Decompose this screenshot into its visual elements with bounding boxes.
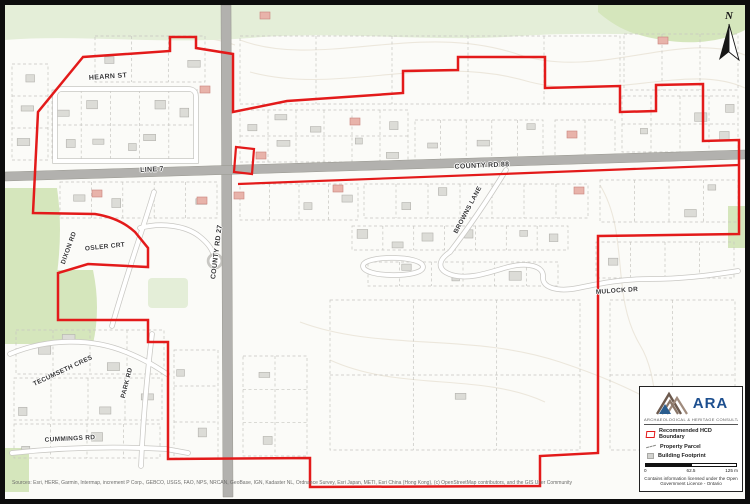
- scale-mid-label: 62.5: [687, 468, 696, 473]
- legend-panel: ARA ARCHAEOLOGICAL & HERITAGE CONSULTANT…: [639, 386, 743, 492]
- north-arrow: N: [705, 8, 745, 66]
- scale-bar-solid-segment: [645, 463, 691, 467]
- legend-divider: [644, 424, 738, 425]
- legend-item-label: Recommended HCD Boundary: [659, 428, 738, 440]
- ara-logo-text: ARA: [693, 395, 729, 412]
- legend-item-label: Property Parcel: [660, 444, 701, 450]
- scale-bar-open-segment: [691, 463, 737, 467]
- building-swatch-icon: [647, 453, 654, 459]
- licence-credit-line2: Government Licence - Ontario: [644, 481, 738, 486]
- parcel-swatch-icon: [646, 445, 656, 448]
- north-arrow-label: N: [725, 10, 733, 22]
- scale-bar: [645, 463, 737, 467]
- legend-item-label: Building Footprint: [658, 453, 706, 459]
- scale-end-label: 125 m: [725, 468, 738, 473]
- scale-start-label: 0: [644, 468, 647, 473]
- legend-item-parcel: Property Parcel: [646, 444, 738, 450]
- ara-mountains-icon: [654, 390, 690, 416]
- legend-item-boundary: Recommended HCD Boundary: [646, 428, 738, 440]
- street-label-line-7: LINE 7: [140, 166, 164, 174]
- basemap-attribution: Sources: Esri, HERE, Garmin, Intermap, i…: [12, 481, 622, 487]
- licence-credit: Contains information licensed under the …: [644, 476, 738, 487]
- ara-logo: ARA: [644, 390, 738, 416]
- map-sheet: HEARN ST LINE 7 COUNTY RD 88 COUNTY RD 2…: [0, 0, 750, 504]
- ara-tagline: ARCHAEOLOGICAL & HERITAGE CONSULTANTS: [644, 417, 738, 422]
- boundary-swatch-icon: [646, 431, 656, 438]
- legend-item-building: Building Footprint: [646, 453, 738, 459]
- scale-bar-labels: 0 62.5 125 m: [644, 468, 738, 474]
